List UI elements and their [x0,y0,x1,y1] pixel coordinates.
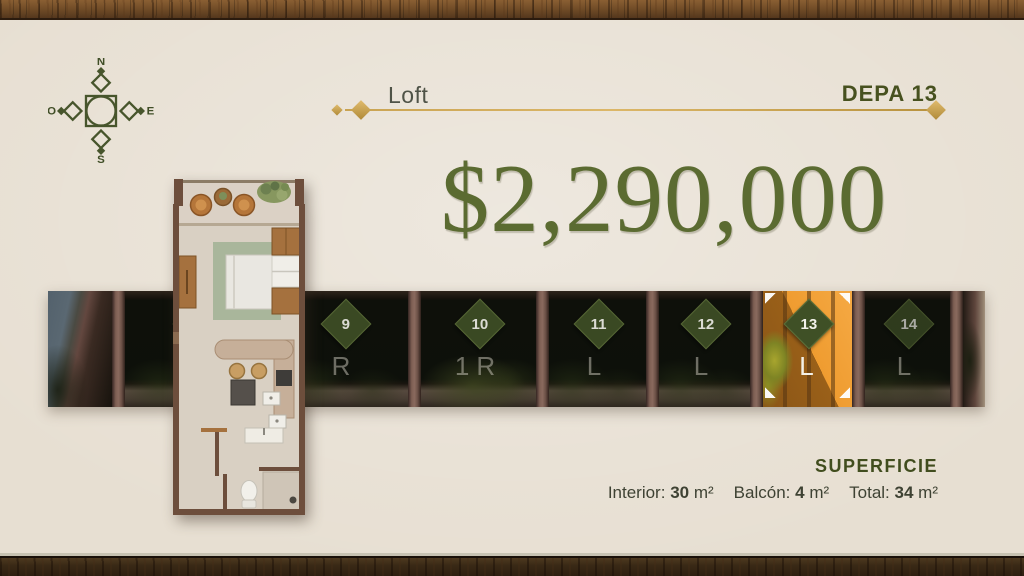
kitchen-counter-bar [215,340,293,359]
sink-lower-drain [275,419,278,422]
hall-shelf [201,428,227,432]
price-amount: $2,290,000 [380,148,948,250]
wall-left-door [173,332,179,344]
unit-number-badge: 9 [320,299,371,350]
building-edge-left [48,291,112,407]
balcony-corner-plant [257,181,291,203]
superficie-interior: Interior: 30 m² [608,483,714,503]
compass-diamond-north [92,74,109,91]
table-plant [219,192,227,200]
superficie-panel: SUPERFICIE Interior: 30 m² Balcón: 4 m² … [608,456,938,503]
unit-cell-12[interactable]: 12 L [659,291,750,407]
sliding-door [178,223,300,226]
gold-diamond-left [351,100,371,120]
superficie-balcon: Balcón: 4 m² [734,483,829,503]
unit-cell-13-selected[interactable]: 13 L [763,291,852,407]
facade-pillar [646,291,659,407]
kitchen-stool-left [230,364,245,379]
wall-right [299,204,305,514]
compass-diamond-south [92,131,109,148]
unit-type-label: L [659,351,750,382]
unit-number-badge: 13 [783,299,834,350]
facade-pillar [112,291,125,407]
hall-wall [215,428,219,476]
compass-rose: N E S O [48,58,154,164]
unit-type-label: L [549,351,646,382]
unit-cell-11[interactable]: 11 L [549,291,646,407]
kitchen-island [231,380,255,405]
gold-divider-line [345,109,936,111]
wood-border-top [0,0,1024,20]
stove [276,370,292,386]
superficie-title: SUPERFICIE [608,456,938,477]
sink-upper-drain [269,396,272,399]
section-label: Loft [388,82,428,109]
unit-name: DEPA 13 [842,81,938,107]
compass-label-north: N [97,58,105,68]
unit-type-label: L [763,351,852,382]
slide: N E S O Loft DEPA 13 $2,290,000 8 2R 9 R… [0,0,1024,576]
balcony-chair-left-cushion [196,200,207,211]
unit-type-label: L [865,351,950,382]
shower-wall [259,467,305,471]
unit-number-badge: 14 [883,299,934,350]
unit-cell-10[interactable]: 10 1R [421,291,536,407]
kitchen-stool-right [252,364,267,379]
facade-pillar [536,291,549,407]
compass-diamond-west [64,102,81,119]
wood-border-bottom [0,556,1024,576]
compass-tip-west [57,107,65,115]
unit-cell-14[interactable]: 14 L [865,291,950,407]
bath-wall-left [223,474,227,511]
unit-number-badge: 10 [454,299,505,350]
balcony-railing [175,180,303,183]
balcony-chair-right-cushion [239,200,250,211]
compass-tip-north [97,67,105,75]
compass-circle [86,96,115,125]
wall-left [173,204,179,514]
toilet-tank [242,500,256,508]
balcony-post-right [295,179,304,206]
shower-drain [290,497,297,504]
compass-label-west: O [48,106,56,118]
facade-pillar [852,291,865,407]
balcony-post-left [174,179,183,206]
wall-bottom [173,509,305,515]
building-edge-right [963,291,985,407]
unit-number-badge: 11 [573,299,624,350]
loft-floor-plan [171,176,307,518]
compass-label-east: E [147,106,154,118]
unit-number-badge: 12 [680,299,731,350]
wardrobe-lower [272,288,300,314]
compass-label-south: S [97,154,105,164]
facade-pillar [950,291,963,407]
toilet-bowl [241,481,257,502]
compass-tip-east [137,107,145,115]
gold-diamond-small [331,104,342,115]
facade-pillar [750,291,763,407]
facade-pillar [408,291,421,407]
unit-type-label: 1R [421,351,536,382]
compass-diamond-east [121,102,138,119]
shower-floor [263,472,303,510]
superficie-total: Total: 34 m² [849,483,938,503]
